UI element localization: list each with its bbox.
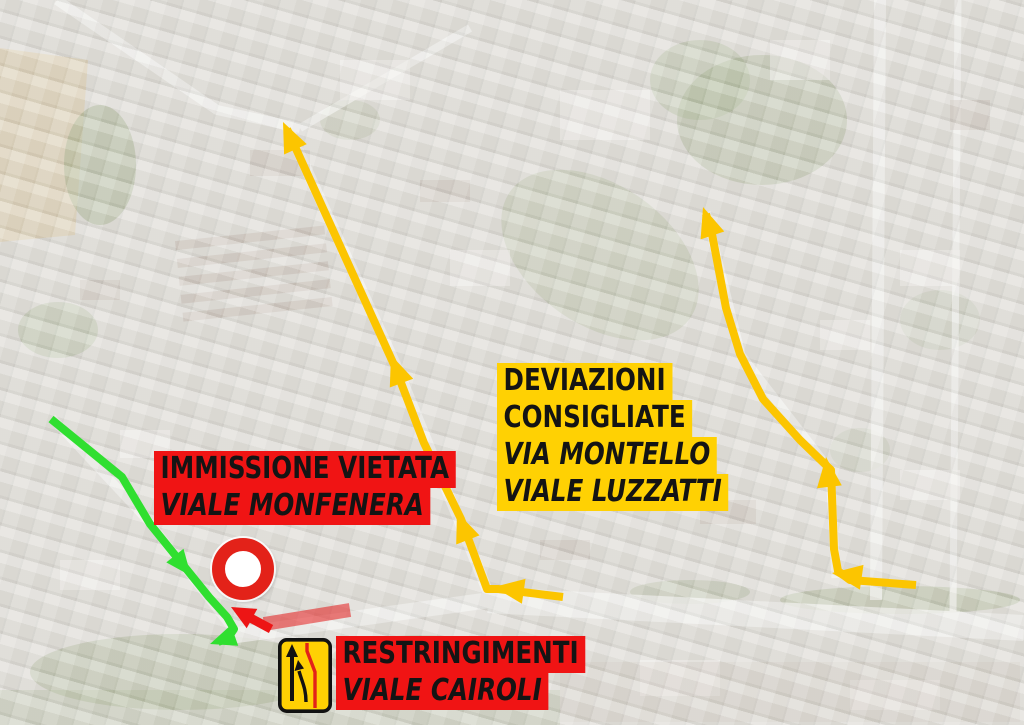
no-entry-sign-icon (212, 538, 274, 600)
detour-label-line2: CONSIGLIATE (497, 400, 692, 437)
traffic-detour-map: IMMISSIONE VIETATA VIALE MONFENERA DEVIA… (0, 0, 1024, 725)
no-entry-label-line2: VIALE MONFENERA (154, 488, 430, 525)
no-entry-label-line1: IMMISSIONE VIETATA (154, 451, 456, 488)
road-narrowing-sign-icon (278, 638, 332, 713)
no-entry-label: IMMISSIONE VIETATA VIALE MONFENERA (154, 451, 456, 525)
detour-label: DEVIAZIONI CONSIGLIATE VIA MONTELLO VIAL… (497, 363, 728, 511)
detour-label-line3: VIA MONTELLO (497, 437, 717, 474)
narrowing-zone-bar (264, 610, 350, 624)
detour-label-line4: VIALE LUZZATTI (497, 474, 728, 511)
narrowing-label-line1: RESTRINGIMENTI (336, 636, 585, 673)
detour-route-east (701, 207, 916, 590)
narrowing-label: RESTRINGIMENTI VIALE CAIROLI (336, 636, 585, 710)
detour-label-line1: DEVIAZIONI (497, 363, 672, 400)
narrowing-label-line2: VIALE CAIROLI (336, 673, 548, 710)
